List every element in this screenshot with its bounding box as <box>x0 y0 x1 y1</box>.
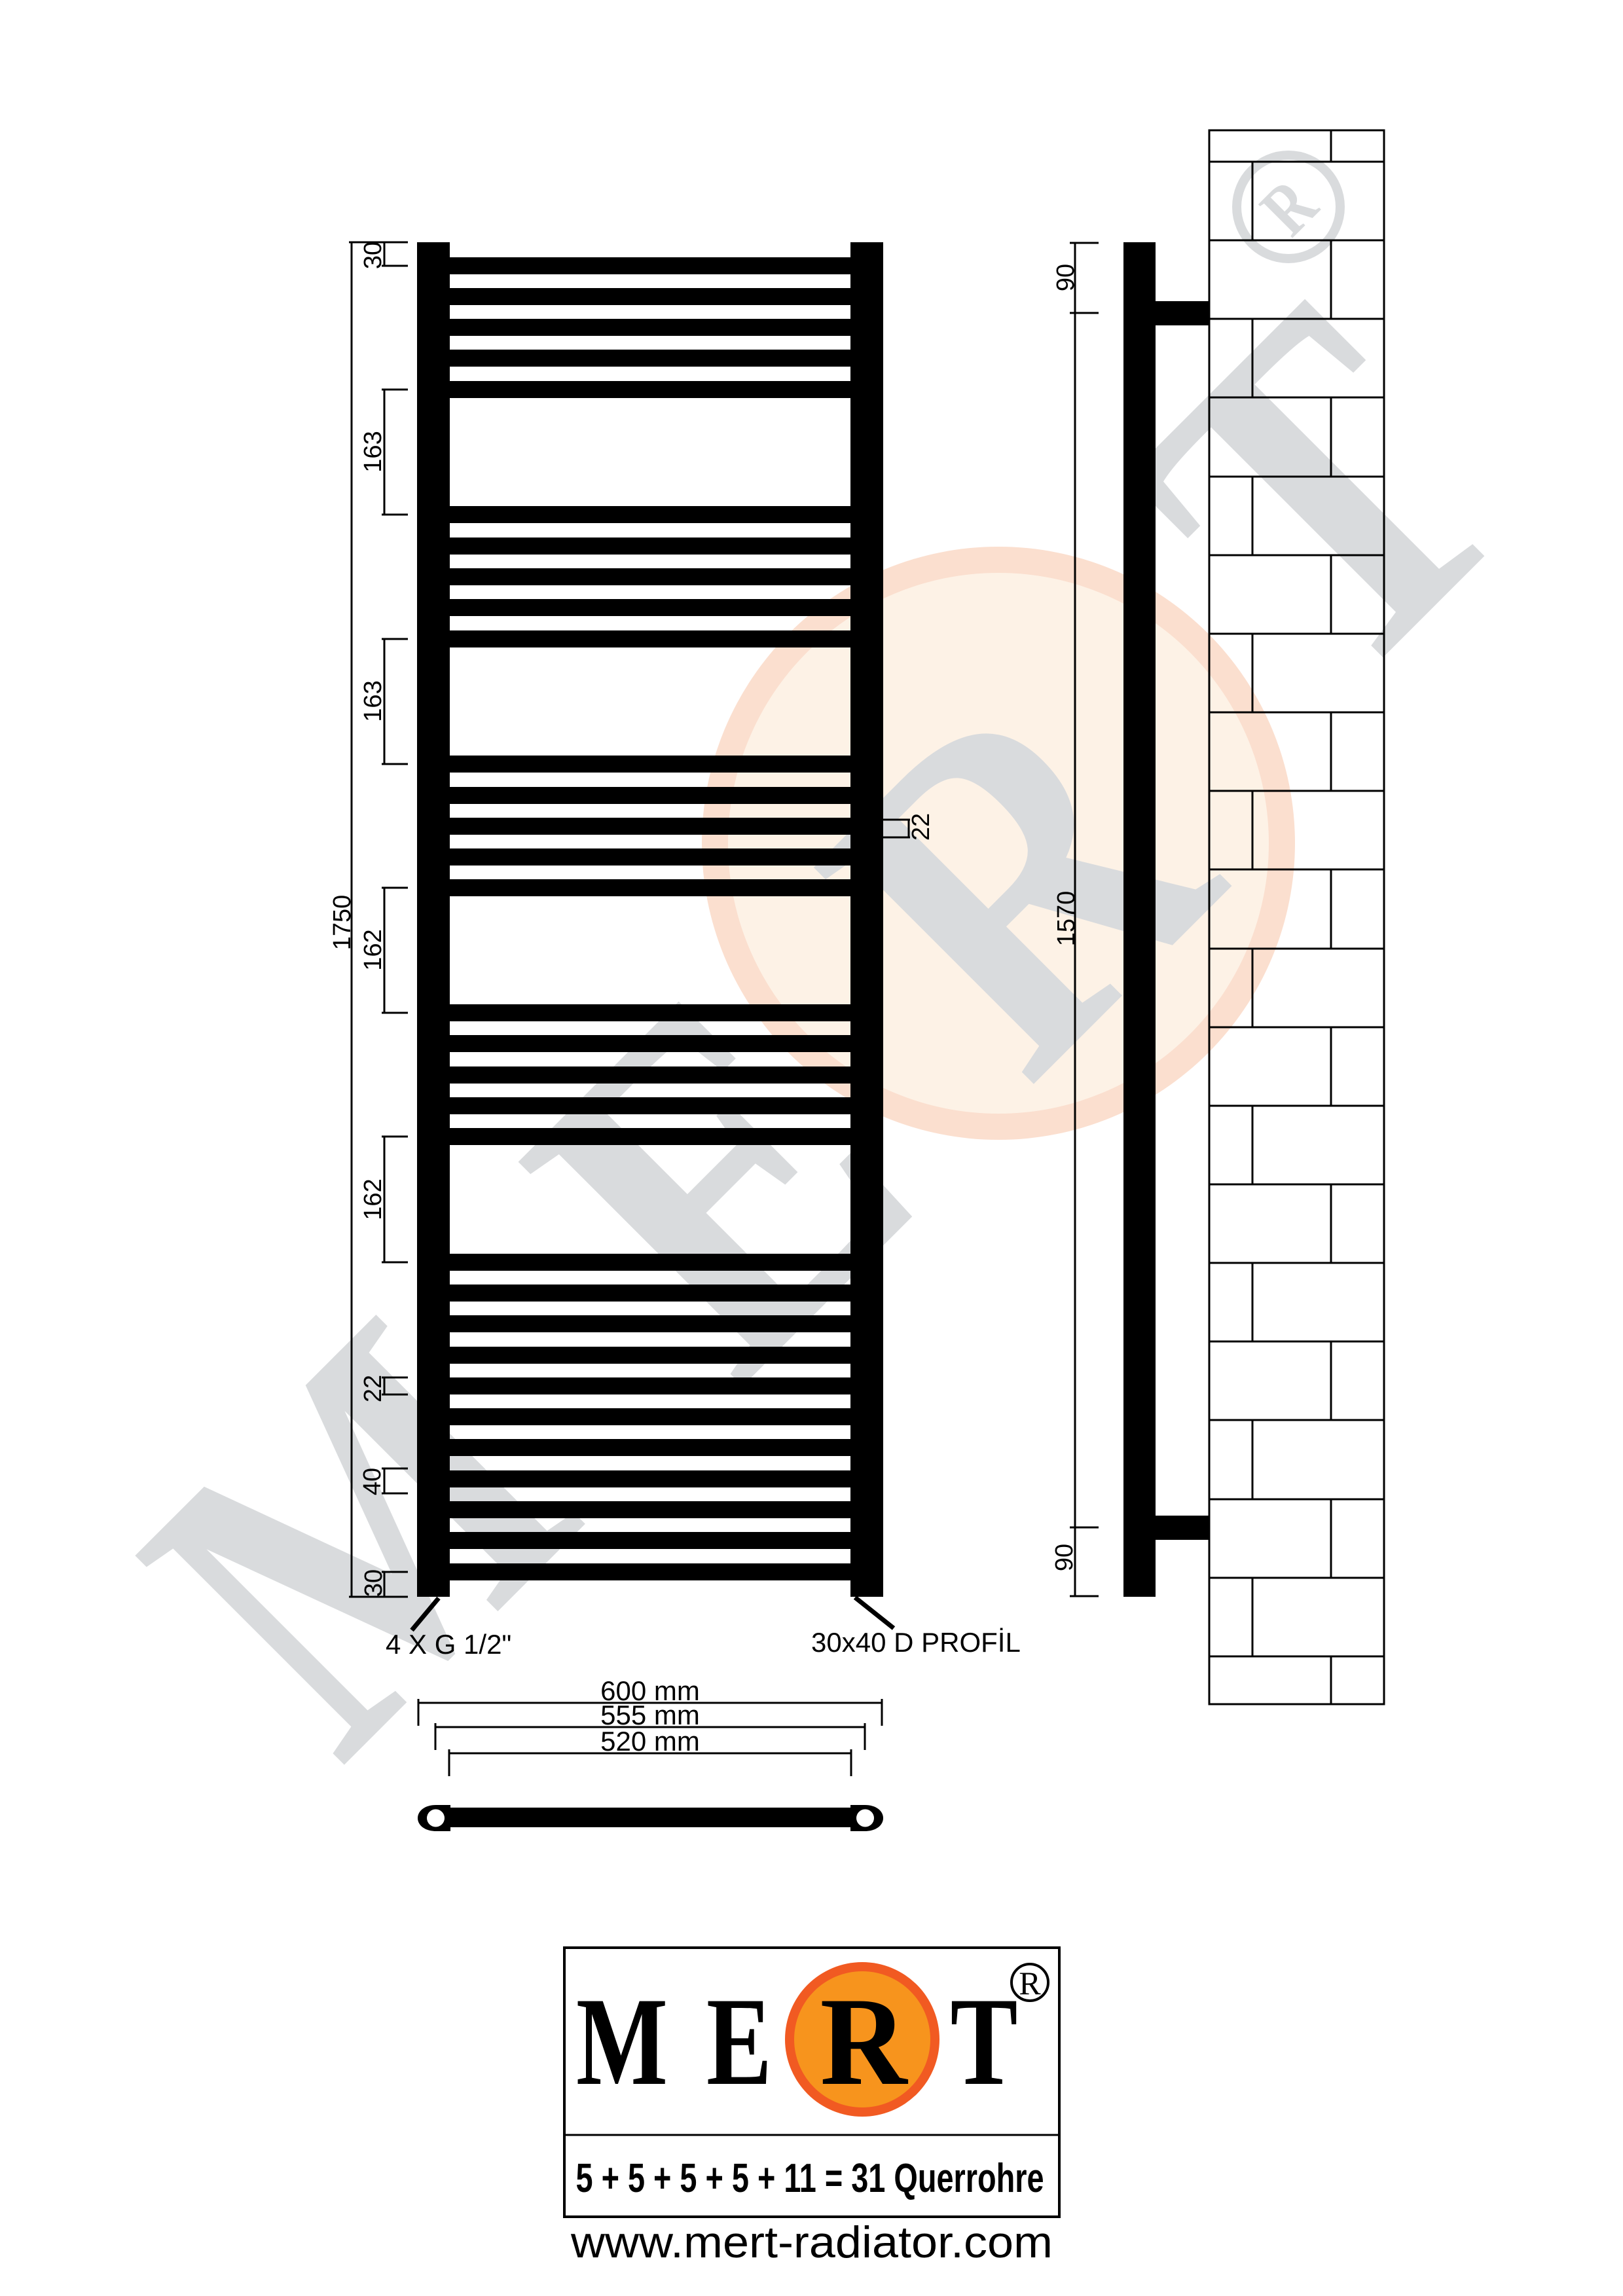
svg-text:90: 90 <box>1052 264 1080 291</box>
svg-text:1750: 1750 <box>329 895 356 951</box>
svg-text:R: R <box>1019 1965 1041 2001</box>
svg-text:30x40 D PROFİL: 30x40 D PROFİL <box>811 1627 1021 1658</box>
svg-text:162: 162 <box>359 929 387 970</box>
svg-text:4 X G 1/2": 4 X G 1/2" <box>386 1629 511 1660</box>
svg-text:www.mert-radiator.com: www.mert-radiator.com <box>570 2217 1053 2267</box>
svg-text:22: 22 <box>907 813 935 841</box>
svg-text:E: E <box>706 1971 772 2111</box>
svg-text:T: T <box>951 1971 1018 2111</box>
svg-text:1570: 1570 <box>1053 891 1080 947</box>
svg-text:162: 162 <box>359 1178 387 1220</box>
svg-text:30: 30 <box>360 1569 388 1597</box>
svg-text:22: 22 <box>359 1375 387 1402</box>
svg-text:90: 90 <box>1051 1544 1078 1571</box>
svg-text:30: 30 <box>359 242 387 269</box>
svg-text:40: 40 <box>359 1468 386 1495</box>
svg-text:163: 163 <box>359 680 387 721</box>
svg-text:520 mm: 520 mm <box>600 1726 700 1757</box>
svg-text:R: R <box>820 1971 909 2111</box>
svg-text:M: M <box>576 1971 668 2111</box>
svg-text:163: 163 <box>359 431 387 472</box>
svg-text:5 + 5 + 5 + 5 + 11 = 31 Querro: 5 + 5 + 5 + 5 + 11 = 31 Querrohre <box>576 2156 1044 2201</box>
